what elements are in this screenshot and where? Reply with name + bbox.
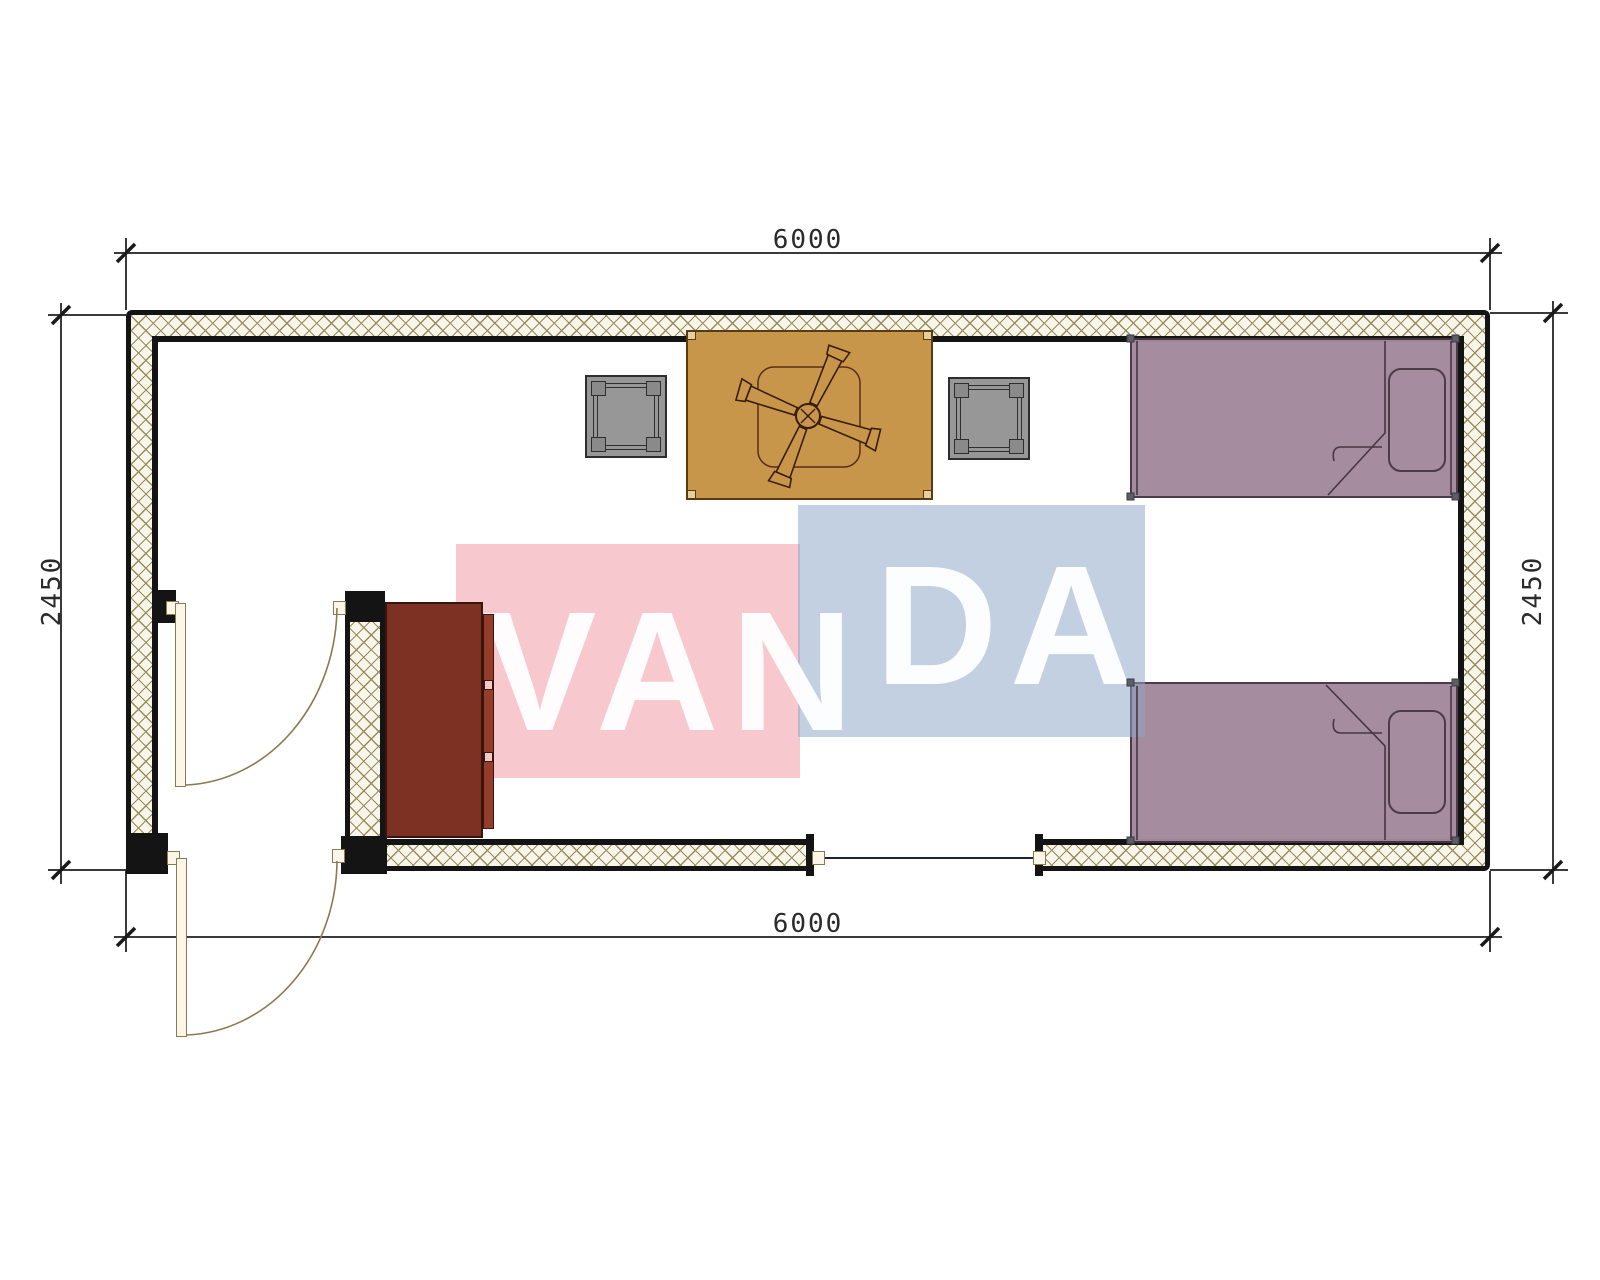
floor-plan-canvas: 6000 6000 2450 2450	[0, 0, 1600, 1280]
dimension-ticks	[52, 244, 1562, 946]
fan-blade	[769, 424, 813, 490]
entrance-door-swing-arc	[187, 861, 337, 1035]
interior-door-swing-arc	[186, 608, 337, 785]
bed-bottom-details	[1127, 679, 1459, 844]
ceiling-fan	[734, 343, 882, 489]
fan-blade	[734, 379, 800, 422]
bed-top-details	[1127, 335, 1459, 500]
fan-blade	[817, 410, 883, 451]
fan-blade	[804, 343, 850, 408]
linework-overlay	[0, 0, 1600, 1280]
